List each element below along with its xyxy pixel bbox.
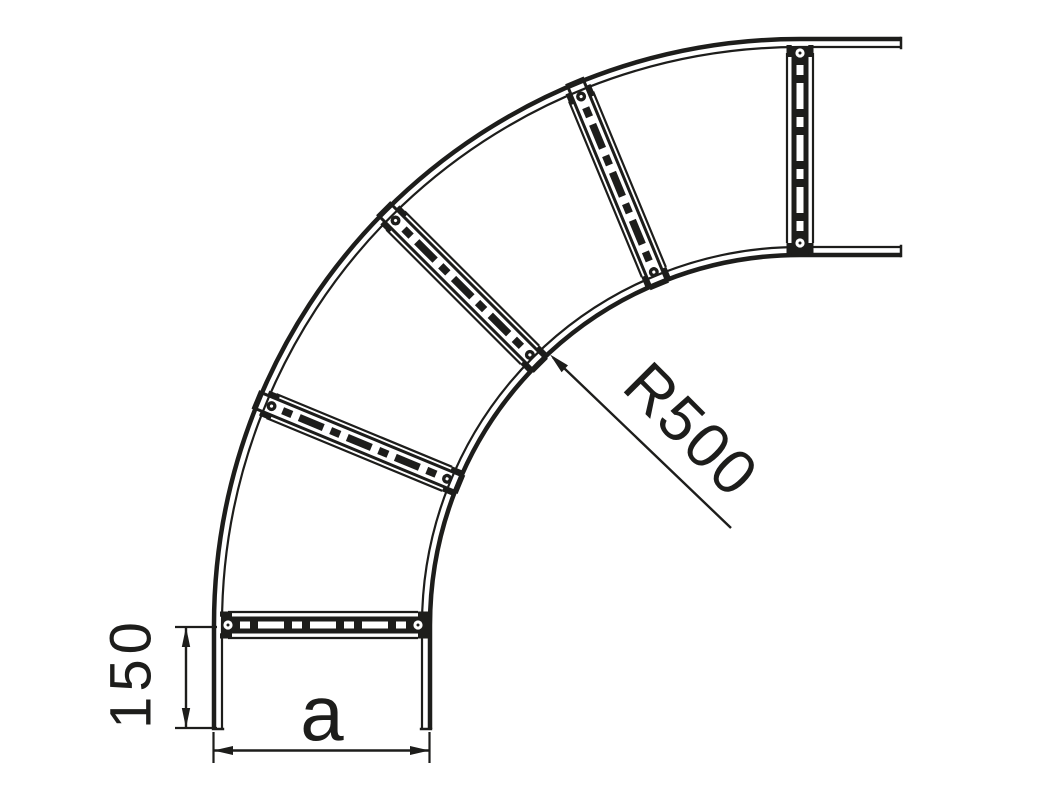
cable-ladder-bend-drawing: 150 a R500 bbox=[0, 0, 1038, 812]
drawing-canvas: 150 a R500 bbox=[0, 0, 1038, 812]
dimension-150: 150 bbox=[99, 617, 218, 729]
dim-a-label: a bbox=[300, 669, 344, 757]
dim-a-arrow-right bbox=[410, 746, 430, 755]
dim-a-arrow-left bbox=[214, 746, 234, 755]
rung-45deg bbox=[375, 200, 550, 375]
dim-150-label: 150 bbox=[99, 617, 164, 729]
dim-150-extension-lines bbox=[175, 627, 217, 728]
dimension-radius: R500 bbox=[550, 349, 772, 528]
dim-radius-label: R500 bbox=[610, 349, 772, 511]
rung-22deg bbox=[252, 388, 466, 497]
rung-67deg bbox=[563, 77, 672, 291]
middle-rungs bbox=[252, 77, 672, 497]
dimension-a: a bbox=[214, 669, 430, 763]
rung-end-top-right bbox=[787, 45, 814, 255]
dim-150-arrow-down bbox=[182, 708, 190, 728]
rung-end-bottom-left bbox=[220, 612, 430, 639]
dim-150-arrow-up bbox=[182, 627, 190, 647]
